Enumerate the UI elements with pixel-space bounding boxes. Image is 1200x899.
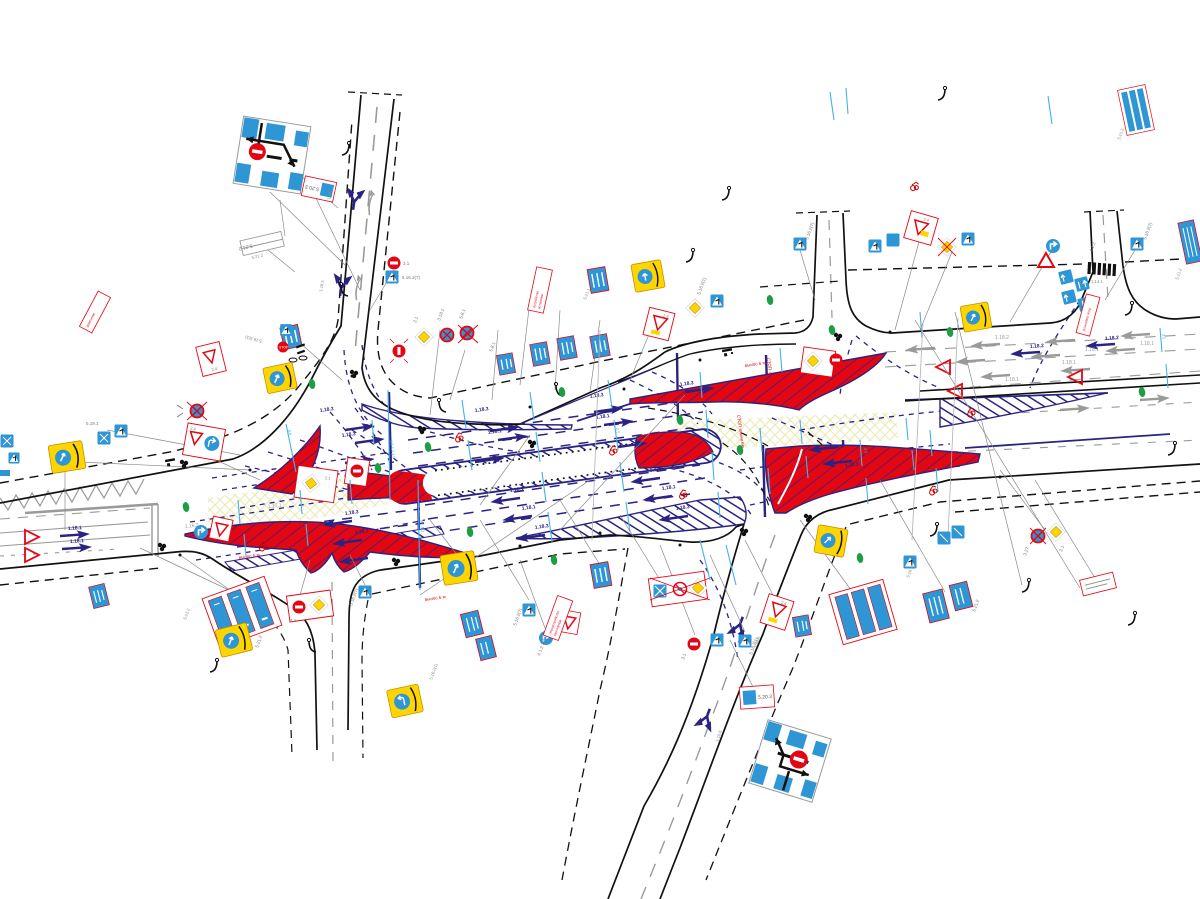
svg-text:1.14.1: 1.14.1: [1091, 279, 1103, 284]
svg-text:1.18.1: 1.18.1: [70, 538, 85, 545]
svg-text:5.20.3: 5.20.3: [758, 694, 773, 701]
svg-text:1.18.2: 1.18.2: [1030, 343, 1045, 350]
svg-text:5.16.2(7): 5.16.2(7): [402, 275, 421, 280]
svg-text:5.19.1: 5.19.1: [86, 421, 99, 426]
svg-text:1.18.1: 1.18.1: [1005, 377, 1019, 383]
svg-text:STOP: STOP: [279, 346, 289, 350]
svg-text:1.18.1: 1.18.1: [1085, 347, 1099, 353]
svg-text:3.1: 3.1: [290, 618, 297, 623]
svg-text:1.18.1: 1.18.1: [1140, 341, 1154, 347]
svg-text:1.18.1: 1.18.1: [1062, 360, 1076, 366]
svg-text:1.18.2: 1.18.2: [1105, 335, 1120, 342]
svg-text:1.18.2: 1.18.2: [995, 335, 1009, 341]
svg-text:1.18.1: 1.18.1: [68, 525, 83, 532]
svg-text:3.1: 3.1: [403, 261, 410, 266]
